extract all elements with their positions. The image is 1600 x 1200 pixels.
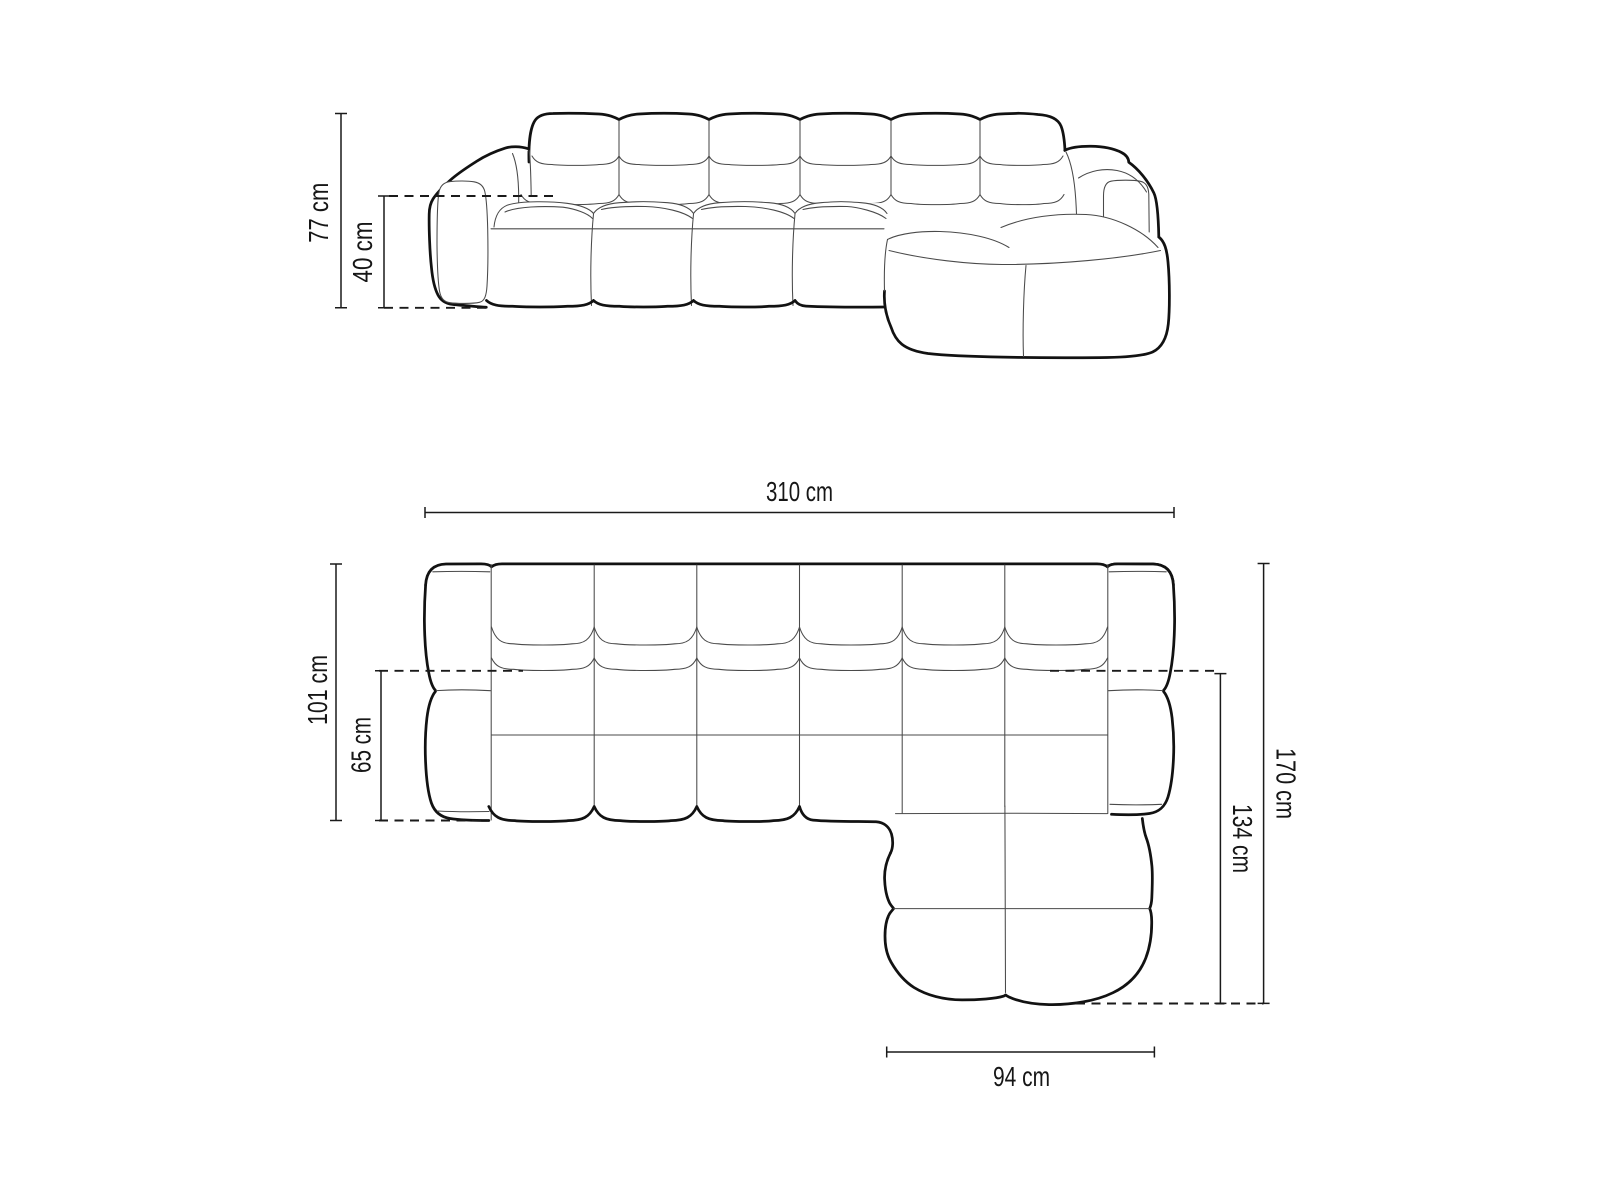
svg-text:77 cm: 77 cm bbox=[303, 183, 334, 243]
svg-text:65 cm: 65 cm bbox=[346, 717, 377, 773]
svg-text:101 cm: 101 cm bbox=[302, 655, 333, 725]
svg-text:310 cm: 310 cm bbox=[766, 476, 833, 507]
svg-text:134 cm: 134 cm bbox=[1227, 804, 1258, 873]
svg-text:94 cm: 94 cm bbox=[993, 1061, 1050, 1092]
svg-text:170 cm: 170 cm bbox=[1271, 748, 1302, 819]
svg-text:40 cm: 40 cm bbox=[347, 222, 378, 283]
